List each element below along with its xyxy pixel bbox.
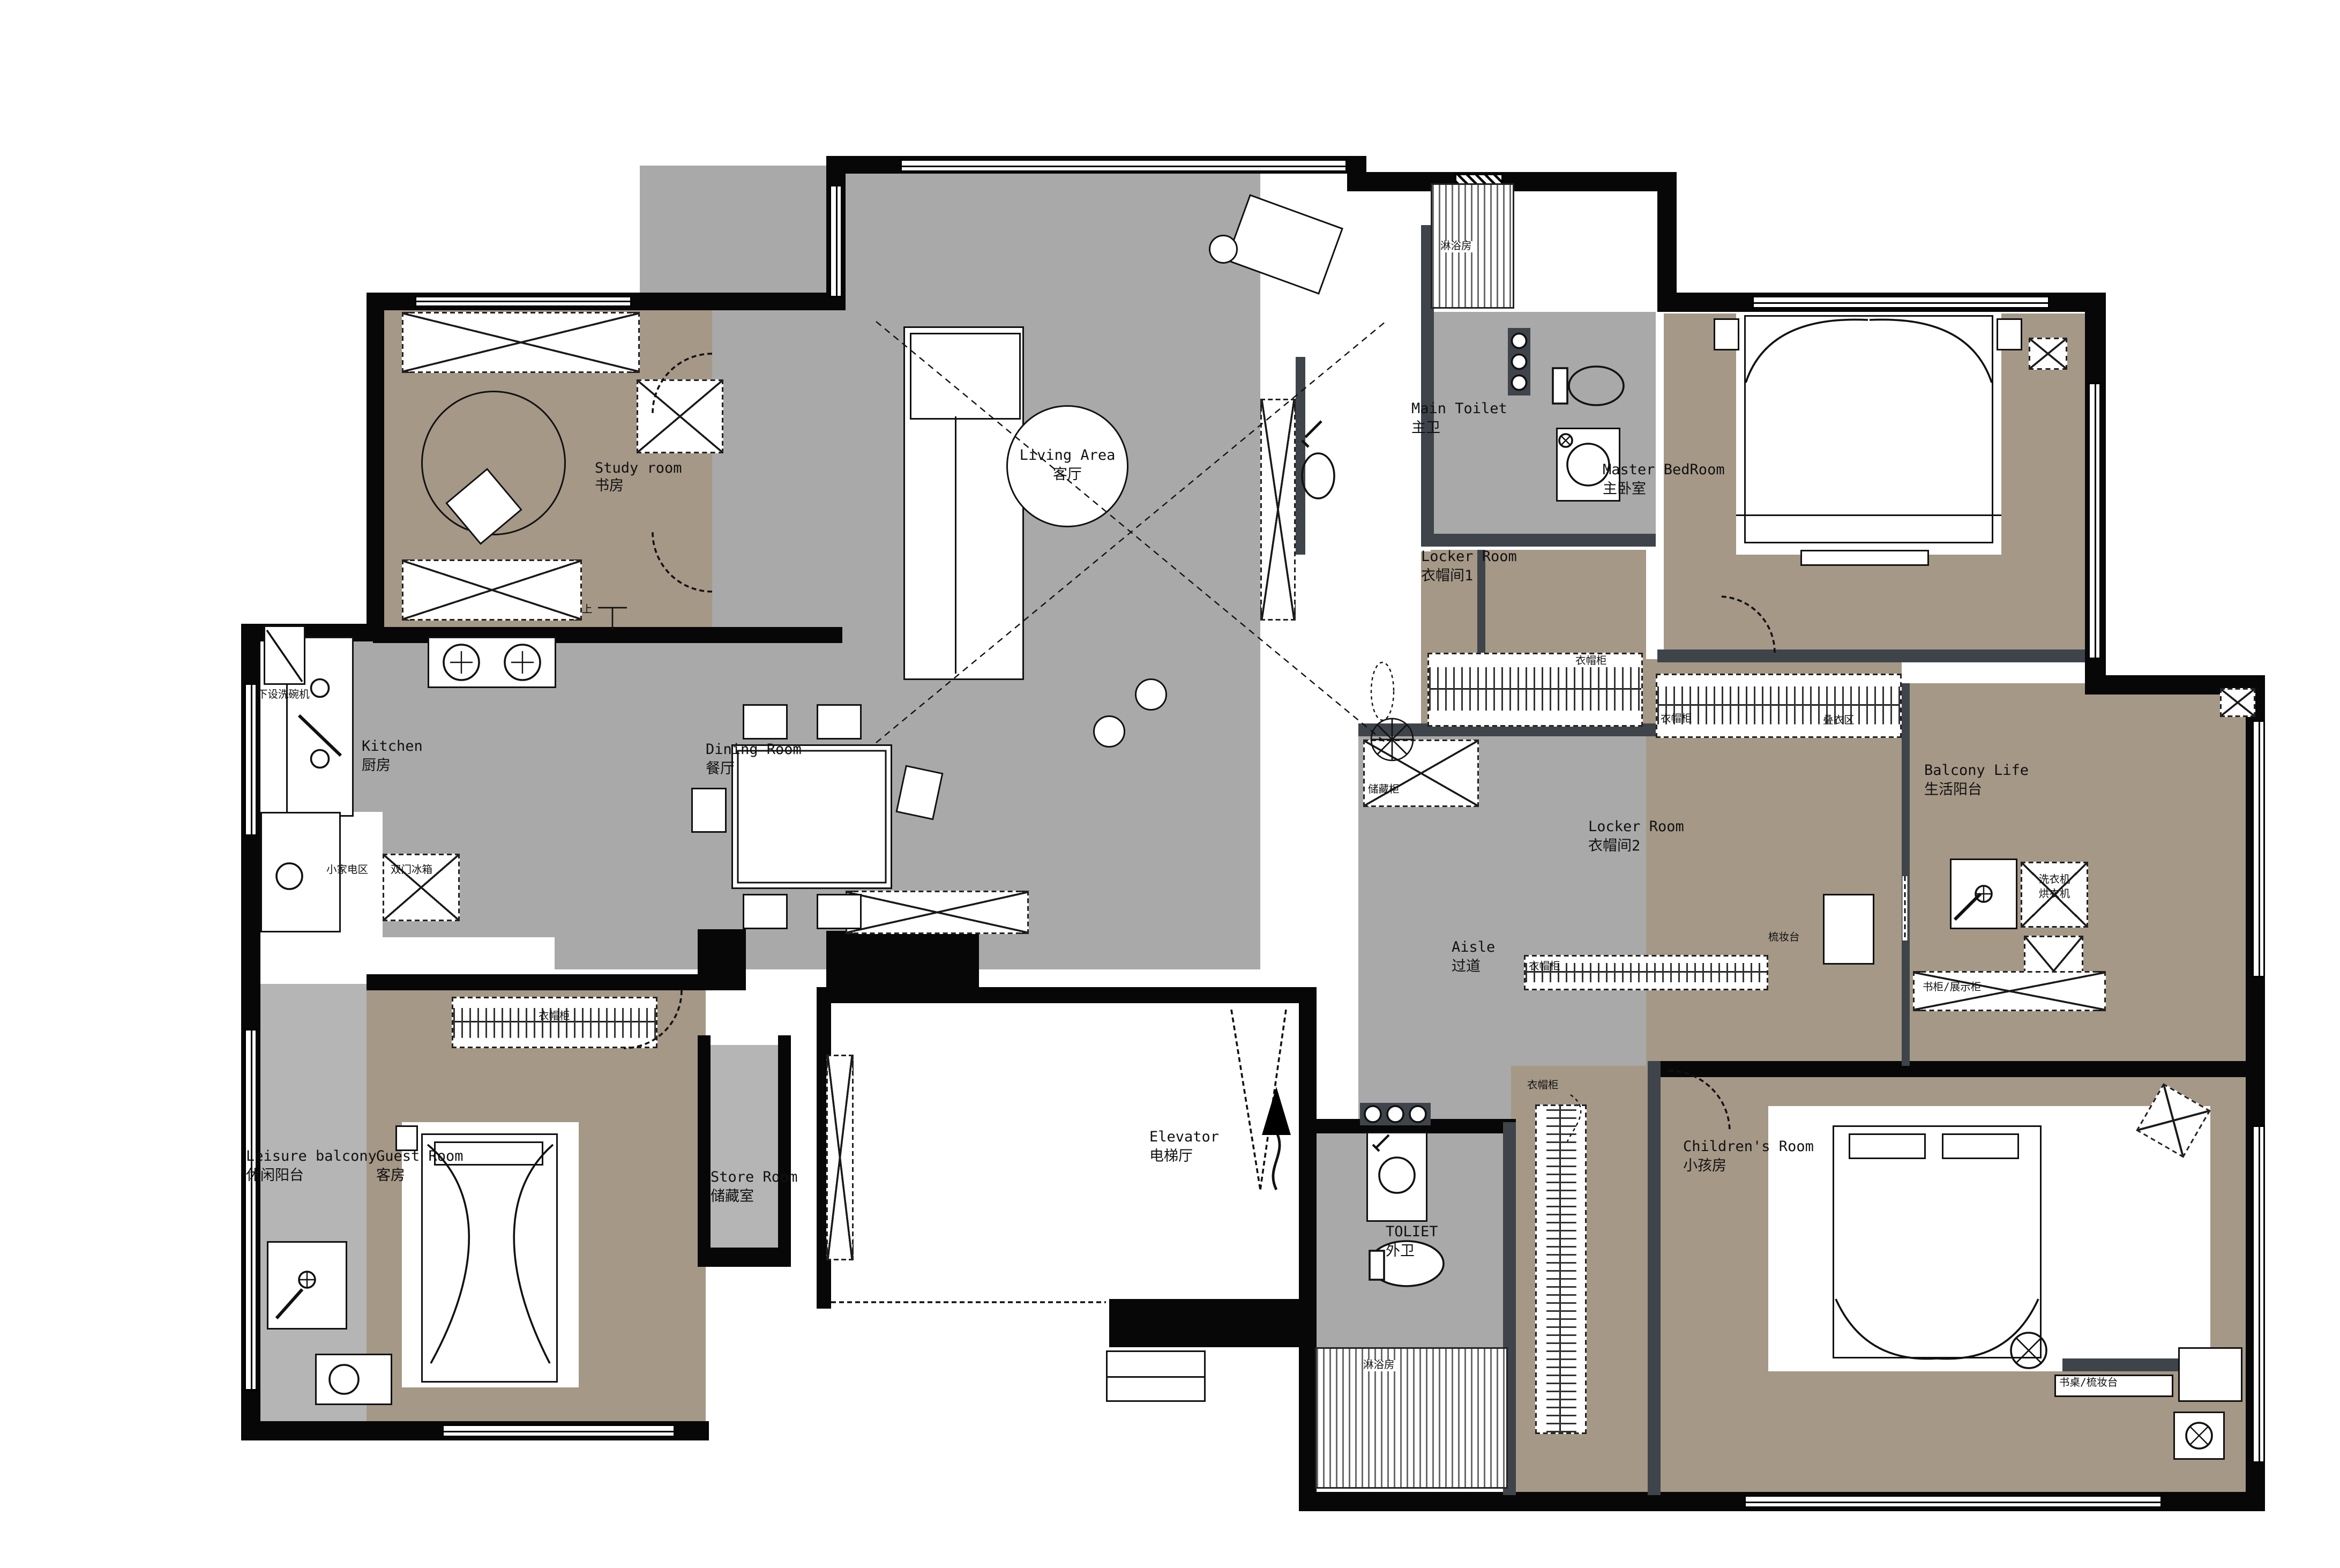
wardrobe-note-locker2-top: 衣帽柜 — [1661, 714, 1692, 725]
wardrobe-note-guest: 衣帽柜 — [539, 1011, 570, 1022]
living-label-circle — [1006, 405, 1128, 527]
dishwasher-cabinet — [264, 625, 305, 685]
master-label-en: Master BedRoom — [1603, 465, 1725, 481]
wall — [778, 1035, 791, 1254]
leisure-label-en: Leisure balcony — [246, 1151, 377, 1167]
floor-plan: Study room 书房 Living Area 客厅 Dining Room… — [0, 0, 2340, 1567]
interior-wall — [1657, 649, 2085, 662]
window — [900, 159, 1347, 172]
wardrobe-note-locker1: 衣帽柜 — [1575, 656, 1607, 667]
pillow — [1849, 1133, 1926, 1159]
dressing-table-note: 梳妆台 — [1768, 932, 1800, 944]
store-floor — [706, 1045, 786, 1254]
leisure-label-zh: 休闲阳台 — [246, 1170, 304, 1186]
wall — [1109, 1299, 1305, 1347]
interior-wall — [1902, 683, 1910, 1066]
locker2-label-en: Locker Room — [1588, 822, 1684, 838]
desk-dressing-note: 书桌/梳妆台 — [2059, 1378, 2118, 1389]
elevator-door-swing — [1231, 1010, 1286, 1190]
locker2-label-zh: 衣帽间2 — [1588, 841, 1640, 857]
small-appliances-note: 小家电区 — [326, 865, 368, 876]
wall — [367, 974, 711, 990]
window — [1744, 1495, 2162, 1508]
locker1-wardrobe — [1427, 653, 1643, 727]
interior-wall — [1648, 1061, 1661, 1495]
main-shower-note: 淋浴房 — [1440, 241, 1472, 252]
dining-label-zh: 餐厅 — [706, 764, 735, 780]
locker1-label-en: Locker Room — [1421, 551, 1517, 568]
dining-chair — [743, 704, 788, 740]
children-wardrobe — [1535, 1104, 1587, 1434]
piano-stool — [1209, 235, 1238, 264]
guest-label-en: Guest Room — [376, 1151, 463, 1167]
bookcase-note: 书柜/展示柜 — [1923, 982, 1981, 994]
main-toilet-floor — [1431, 312, 1656, 539]
up-note: 上 — [582, 604, 593, 616]
window — [244, 1029, 257, 1391]
tv-wall-cabinet — [1260, 399, 1296, 621]
wall — [1299, 987, 1317, 1511]
study-cabinet-2 — [402, 559, 582, 621]
bed-bench — [1800, 550, 1929, 566]
wall — [1657, 180, 1677, 305]
window — [244, 683, 257, 836]
children-desk-counter — [2062, 1358, 2181, 1371]
living-label-en: Living Area — [1020, 450, 1116, 466]
outer-shower-note: 淋浴房 — [1363, 1360, 1395, 1371]
children-bed — [1833, 1125, 2042, 1358]
aisle-label-zh: 过道 — [1452, 961, 1481, 977]
balcony-life-label-en: Balcony Life — [1924, 765, 2029, 781]
vent-shaft — [1360, 1103, 1431, 1125]
wall — [698, 1035, 711, 1254]
locker1-label-zh: 衣帽间1 — [1421, 571, 1473, 587]
wall — [367, 293, 384, 641]
window — [829, 185, 842, 297]
outer-shower-room — [1315, 1347, 1508, 1489]
wall — [1648, 1061, 2259, 1077]
children-stool-box — [2173, 1412, 2225, 1460]
interior-wall — [1421, 534, 1656, 547]
vent-shaft — [1508, 328, 1530, 395]
balcony-shower — [1950, 858, 2017, 929]
children-side-cabinet — [2178, 1347, 2242, 1402]
column-box — [2029, 338, 2067, 370]
dishwasher-note: 下设洗碗机 — [257, 690, 310, 701]
nightstand — [1997, 318, 2022, 350]
elevator-hall-cabinet — [826, 1055, 854, 1260]
sofa-seat-line — [955, 416, 956, 674]
elevator-label-zh: 电梯厅 — [1149, 1151, 1193, 1167]
locker2-wardrobe-top — [1656, 674, 1902, 738]
fridge-note: 双门冰箱 — [391, 865, 432, 876]
dining-chair — [743, 894, 788, 929]
wall — [698, 929, 746, 990]
window — [415, 296, 632, 307]
column-box — [2220, 688, 2255, 717]
dryer-note: 烘衣机 — [2039, 889, 2070, 900]
study-label-zh: 书房 — [595, 481, 624, 497]
up-arrow-head — [1262, 1087, 1291, 1135]
outer-toilet-label-zh: 外卫 — [1386, 1246, 1415, 1262]
dining-chair — [817, 704, 862, 740]
dining-ext-floor — [555, 635, 640, 969]
window — [2252, 720, 2265, 977]
guest-label-zh: 客房 — [376, 1170, 405, 1186]
window — [442, 1424, 675, 1437]
elevator-label-en: Elevator — [1149, 1132, 1219, 1148]
dining-chair — [817, 894, 862, 929]
ot-sink-counter — [1366, 1132, 1427, 1222]
kitchen-label-zh: 厨房 — [362, 760, 391, 776]
aisle-storage-cabinet — [1363, 740, 1479, 807]
wall — [241, 1421, 373, 1440]
study-cabinet — [402, 312, 640, 373]
dining-chair — [691, 788, 727, 833]
entry-step-line — [1106, 1376, 1206, 1378]
window — [1752, 296, 2050, 309]
store-label-en: Store Room — [711, 1172, 798, 1188]
pouf — [1135, 678, 1167, 711]
window — [2252, 1125, 2265, 1463]
dressing-table — [1823, 894, 1874, 965]
aisle-label-en: Aisle — [1452, 942, 1495, 958]
outer-toilet-label-en: TOLIET — [1386, 1227, 1438, 1243]
master-bed-foot-line — [1736, 514, 2001, 517]
dining-table — [731, 744, 892, 889]
master-label-zh: 主卧室 — [1603, 484, 1646, 500]
nightstand — [1714, 318, 1739, 350]
wall — [826, 931, 979, 987]
dining-sideboard — [846, 891, 1029, 934]
store-label-zh: 储藏室 — [711, 1191, 754, 1207]
nightstand — [395, 1125, 418, 1151]
children-label-zh: 小孩房 — [1683, 1161, 1726, 1177]
wall — [817, 987, 1315, 1003]
kitchen-label-en: Kitchen — [362, 741, 423, 757]
balcony-life-label-zh: 生活阳台 — [1924, 785, 1982, 801]
folding-area-note: 叠衣区 — [1823, 715, 1855, 727]
storage-cabinet-note: 储藏柜 — [1368, 785, 1400, 796]
window — [2088, 383, 2101, 659]
sofa-chaise — [910, 333, 1021, 420]
up-arrow-tail — [1273, 1132, 1280, 1190]
wardrobe-note-locker2-bottom: 衣帽柜 — [1529, 961, 1560, 973]
guest-bed — [421, 1133, 558, 1383]
children-label-en: Children's Room — [1683, 1141, 1814, 1158]
leisure-shower — [267, 1241, 347, 1330]
living-label-zh: 客厅 — [1053, 469, 1082, 486]
master-bed — [1744, 315, 1993, 543]
dining-label-en: Dining Room — [706, 744, 802, 760]
pouf — [1093, 715, 1125, 748]
study-desk — [637, 379, 723, 453]
main-toilet-label-zh: 主卫 — [1411, 423, 1440, 439]
stove-counter — [428, 637, 556, 688]
vanity-zone — [1296, 362, 1431, 551]
leisure-washer — [315, 1354, 392, 1405]
wall — [698, 1248, 791, 1267]
washer-note: 洗衣机 — [2039, 875, 2070, 886]
interior-wall — [1296, 357, 1305, 555]
mirror — [1371, 662, 1394, 720]
study-label-en: Study room — [595, 463, 682, 479]
main-toilet-label-en: Main Toilet — [1411, 404, 1507, 420]
pillow — [1942, 1133, 2019, 1159]
wardrobe-note-children: 衣帽柜 — [1527, 1080, 1559, 1092]
